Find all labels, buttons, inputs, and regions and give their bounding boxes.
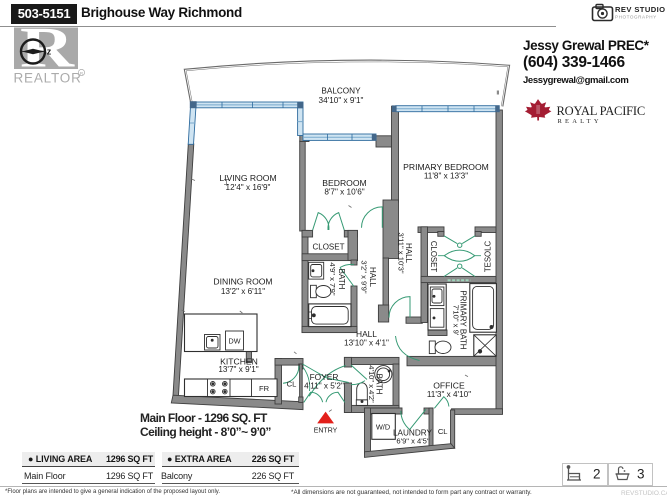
- svg-text:7'10" x 9': 7'10" x 9': [452, 305, 461, 336]
- svg-text:3'11" x 10'3": 3'11" x 10'3": [397, 232, 406, 273]
- svg-text:TESOLC: TESOLC: [484, 241, 493, 273]
- svg-text:6'9" x 4'5": 6'9" x 4'5": [396, 437, 430, 446]
- svg-text:HALL: HALL: [356, 329, 377, 339]
- svg-text:4'11" x 5'2": 4'11" x 5'2": [304, 381, 344, 390]
- svg-text:8'7" x 10'6": 8'7" x 10'6": [324, 187, 364, 196]
- svg-text:CL: CL: [438, 427, 448, 436]
- svg-text:CL: CL: [287, 379, 297, 388]
- svg-text:11'8" x 13'3": 11'8" x 13'3": [424, 172, 468, 181]
- svg-text:CLOSET: CLOSET: [312, 243, 344, 252]
- svg-text:4'10" x 4'2": 4'10" x 4'2": [367, 365, 376, 403]
- svg-text:ENTRY: ENTRY: [314, 428, 338, 435]
- svg-text:4'9" x 7'9": 4'9" x 7'9": [328, 262, 337, 296]
- svg-text:11'3" x 4'10": 11'3" x 4'10": [427, 390, 471, 399]
- svg-text:3'2" x 9'9": 3'2" x 9'9": [359, 260, 368, 294]
- svg-text:13'7" x 9'1": 13'7" x 9'1": [218, 365, 258, 374]
- svg-text:HALL: HALL: [368, 267, 377, 288]
- svg-text:PRIMARY BEDROOM: PRIMARY BEDROOM: [403, 162, 489, 172]
- svg-text:OFFICE: OFFICE: [433, 381, 465, 391]
- svg-text:W/D: W/D: [376, 423, 390, 432]
- svg-text:BATH: BATH: [337, 269, 346, 290]
- svg-text:13'2" x 6'11": 13'2" x 6'11": [221, 287, 265, 296]
- svg-text:LIVING ROOM: LIVING ROOM: [219, 173, 276, 183]
- svg-text:FR: FR: [259, 384, 270, 393]
- svg-text:34'10" x 9'1": 34'10" x 9'1": [319, 96, 364, 105]
- svg-text:DW: DW: [229, 337, 241, 346]
- svg-text:DINING ROOM: DINING ROOM: [213, 276, 272, 286]
- svg-text:BALCONY: BALCONY: [321, 87, 361, 96]
- svg-text:13'10" x 4'1": 13'10" x 4'1": [344, 338, 389, 347]
- svg-text:CLOSET: CLOSET: [429, 241, 438, 272]
- svg-text:12'4" x 16'9": 12'4" x 16'9": [226, 183, 271, 192]
